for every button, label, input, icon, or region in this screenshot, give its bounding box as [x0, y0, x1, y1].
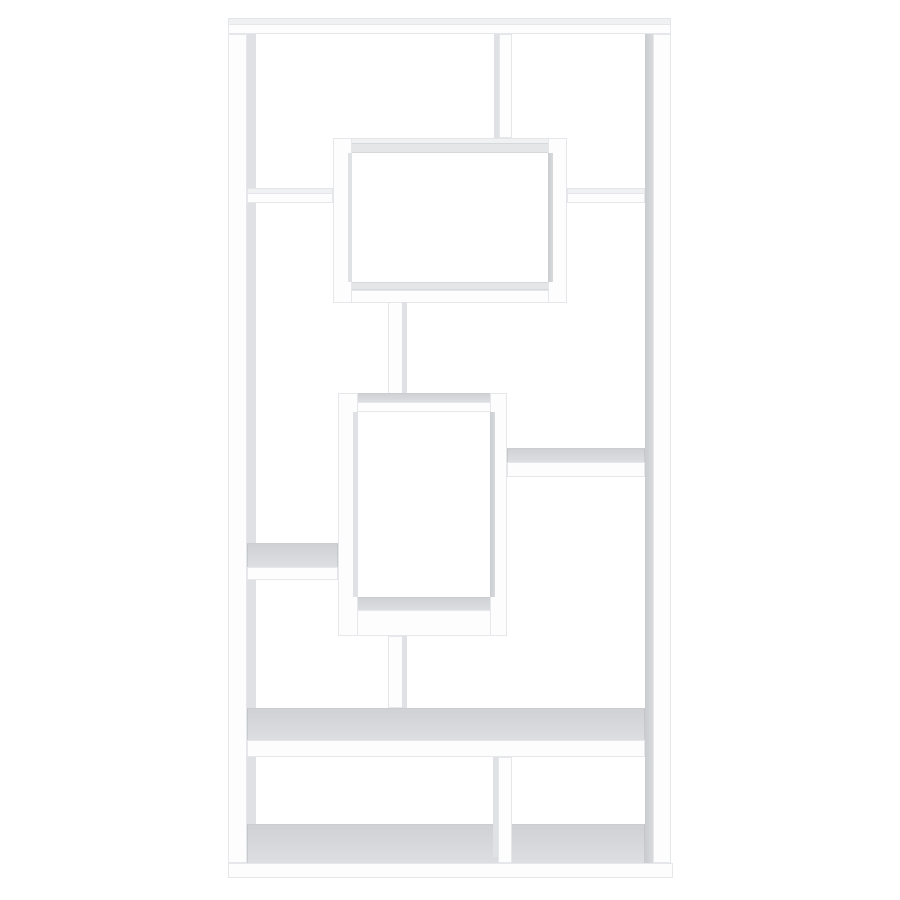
- left-mid-shelf-front: [247, 567, 338, 580]
- middle-box-bottom-surface: [338, 597, 507, 610]
- middle-box-right-inner-shade: [490, 412, 495, 597]
- top-divider-front: [499, 34, 512, 138]
- right-post-front: [653, 34, 671, 863]
- bottom-divider-front: [498, 757, 512, 863]
- connector-post-shade: [402, 302, 407, 395]
- middle-box-bottom-front: [338, 610, 507, 636]
- big-shelf-surface: [247, 708, 645, 740]
- bookcase: [0, 0, 900, 900]
- right-mid-shelf-surface: [507, 448, 645, 462]
- base-kick-front: [228, 863, 673, 878]
- upper-box-right-inner-shade: [548, 153, 553, 282]
- right-post-inner-shade: [645, 34, 653, 863]
- upper-box-top-front: [333, 143, 567, 153]
- middle-box-left-inner-shade: [353, 412, 358, 597]
- upper-shelf-right-front: [567, 193, 645, 203]
- upper-shelf-left-front: [247, 193, 333, 203]
- upper-box-left-inner-shade: [348, 153, 352, 282]
- left-mid-shelf-surface: [247, 543, 338, 567]
- upper-box-bottom-front: [333, 290, 567, 303]
- middle-box-top-front: [338, 402, 507, 412]
- right-mid-shelf-front: [507, 462, 645, 477]
- lower-post-shade: [402, 636, 407, 708]
- upper-box-bottom-surface: [333, 282, 567, 290]
- left-post-front: [228, 34, 247, 863]
- bottom-floor-surface: [247, 824, 645, 863]
- product-photo: [0, 0, 900, 900]
- frame-top-front: [228, 24, 671, 34]
- big-shelf-front: [247, 740, 645, 757]
- middle-box-top-surface: [338, 393, 507, 402]
